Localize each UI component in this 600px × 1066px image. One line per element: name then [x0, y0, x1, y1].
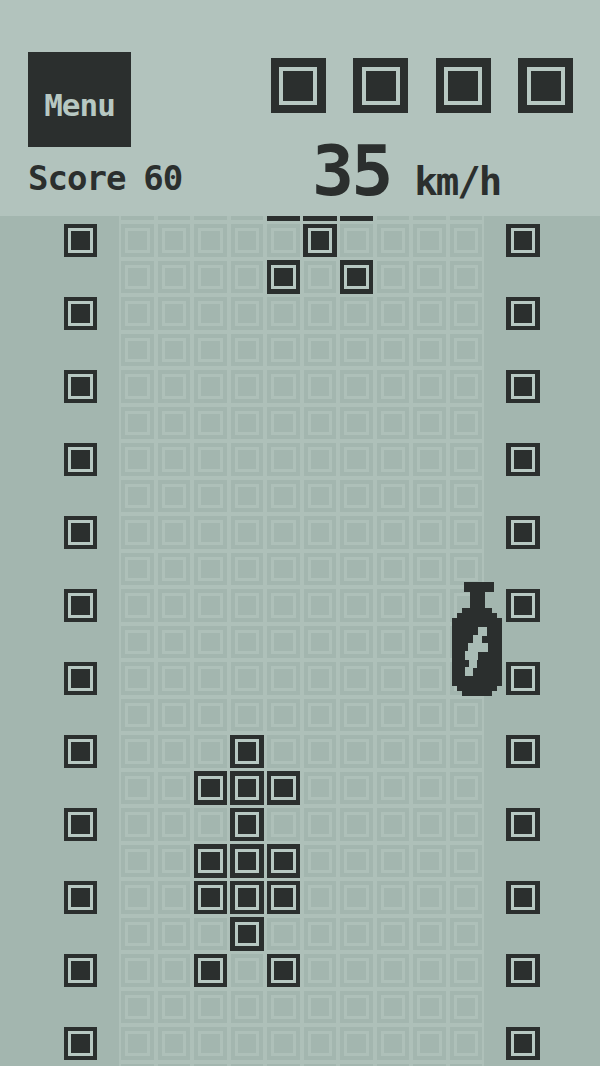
empty-cell [375, 770, 412, 807]
empty-cell [265, 332, 302, 369]
empty-cell [156, 697, 193, 734]
player-car-block [230, 881, 264, 915]
wall-block-left [64, 297, 98, 331]
empty-cell [156, 1062, 193, 1066]
empty-cell [411, 332, 448, 369]
empty-cell [265, 587, 302, 624]
score-value: 60 [143, 158, 182, 198]
empty-cell [265, 733, 302, 770]
empty-cell [229, 952, 266, 989]
empty-cell [229, 989, 266, 1026]
empty-cell [411, 770, 448, 807]
wall-block-left [64, 808, 98, 842]
empty-cell [411, 441, 448, 478]
empty-cell [265, 1062, 302, 1066]
empty-cell [119, 843, 156, 880]
empty-cell [302, 1025, 339, 1062]
menu-button[interactable]: Menu [28, 52, 131, 147]
empty-cell [375, 441, 412, 478]
empty-cell [192, 551, 229, 588]
empty-cell [119, 514, 156, 551]
empty-cell [192, 259, 229, 296]
empty-cell [156, 879, 193, 916]
empty-cell [265, 551, 302, 588]
empty-cell [156, 843, 193, 880]
empty-cell [338, 514, 375, 551]
empty-cell [338, 770, 375, 807]
empty-cell [192, 1062, 229, 1066]
enemy-car-block [303, 224, 337, 258]
empty-cell [411, 952, 448, 989]
empty-cell [302, 697, 339, 734]
empty-cell [229, 697, 266, 734]
empty-cell [302, 660, 339, 697]
wall-block-left [64, 1027, 98, 1061]
empty-cell [156, 514, 193, 551]
empty-cell [448, 879, 485, 916]
wall-block-left [64, 954, 98, 988]
empty-cell [265, 222, 302, 259]
empty-cell [448, 952, 485, 989]
empty-cell [338, 295, 375, 332]
empty-cell [265, 1025, 302, 1062]
wall-block-left [64, 735, 98, 769]
wall-block-left [64, 370, 98, 404]
empty-cell [375, 989, 412, 1026]
empty-cell [119, 806, 156, 843]
empty-cell [338, 879, 375, 916]
empty-cell [448, 843, 485, 880]
speed-value: 35 [312, 136, 390, 206]
empty-cell [411, 368, 448, 405]
empty-cell [448, 514, 485, 551]
empty-cell [229, 368, 266, 405]
empty-cell [265, 660, 302, 697]
player-car-block [267, 771, 301, 805]
empty-cell [302, 514, 339, 551]
empty-cell [119, 441, 156, 478]
empty-cell [119, 916, 156, 953]
enemy-car-block [303, 216, 337, 221]
empty-cell [119, 770, 156, 807]
player-car-block [230, 771, 264, 805]
empty-cell [338, 843, 375, 880]
player-car-block [194, 881, 228, 915]
player-car-block [194, 954, 228, 988]
empty-cell [338, 1025, 375, 1062]
empty-cell [302, 332, 339, 369]
player-car-block [267, 954, 301, 988]
empty-cell [448, 259, 485, 296]
wall-block-left [64, 589, 98, 623]
player-car-block [194, 844, 228, 878]
empty-cell [338, 332, 375, 369]
empty-cell [229, 295, 266, 332]
empty-cell [119, 295, 156, 332]
wall-block-left [64, 516, 98, 550]
lives [271, 58, 574, 113]
wall-block-right [506, 443, 540, 477]
empty-cell [375, 843, 412, 880]
empty-cell [156, 551, 193, 588]
empty-cell [156, 660, 193, 697]
menu-button-label: Menu [44, 87, 115, 123]
empty-cell [229, 478, 266, 515]
empty-cell [338, 222, 375, 259]
empty-cell [375, 332, 412, 369]
speed-unit: km/h [414, 162, 500, 201]
empty-cell [192, 916, 229, 953]
empty-cell [229, 259, 266, 296]
empty-cell [302, 441, 339, 478]
hud: Menu Score 60 35 km/h [0, 0, 600, 216]
empty-cell [448, 295, 485, 332]
wall-block-right [506, 735, 540, 769]
empty-cell [119, 368, 156, 405]
empty-cell [338, 405, 375, 442]
empty-cell [119, 332, 156, 369]
empty-cell [338, 368, 375, 405]
empty-cell [338, 916, 375, 953]
empty-cell [192, 733, 229, 770]
empty-cell [375, 733, 412, 770]
empty-cell [375, 1025, 412, 1062]
empty-cell [411, 1062, 448, 1066]
empty-cell [375, 368, 412, 405]
empty-cell [156, 770, 193, 807]
empty-cell [411, 733, 448, 770]
empty-cell [411, 916, 448, 953]
empty-cell [338, 660, 375, 697]
empty-cell [192, 1025, 229, 1062]
empty-cell [156, 295, 193, 332]
empty-cell [192, 405, 229, 442]
life-block [353, 58, 408, 113]
wall-block-left [64, 443, 98, 477]
empty-cell [338, 733, 375, 770]
empty-cell [119, 879, 156, 916]
game-screen: Menu Score 60 35 km/h [0, 0, 600, 1066]
empty-cell [375, 660, 412, 697]
empty-cell [229, 1062, 266, 1066]
wall-block-right [506, 1027, 540, 1061]
empty-cell [338, 551, 375, 588]
wall-block-right [506, 297, 540, 331]
empty-cell [375, 551, 412, 588]
empty-cell [302, 587, 339, 624]
empty-cell [119, 478, 156, 515]
empty-cell [265, 478, 302, 515]
speed-display: 35 km/h [312, 136, 500, 206]
empty-cell [156, 259, 193, 296]
empty-cell [375, 259, 412, 296]
player-car-block [267, 881, 301, 915]
life-block [271, 58, 326, 113]
empty-cell [119, 733, 156, 770]
empty-cell [302, 733, 339, 770]
empty-cell [375, 697, 412, 734]
empty-cell [229, 332, 266, 369]
empty-cell [119, 551, 156, 588]
empty-cell [302, 843, 339, 880]
empty-cell [375, 295, 412, 332]
empty-cell [302, 405, 339, 442]
empty-cell [265, 514, 302, 551]
empty-cell [229, 1025, 266, 1062]
empty-cell [411, 587, 448, 624]
empty-cell [229, 441, 266, 478]
empty-cell [448, 989, 485, 1026]
empty-cell [119, 1025, 156, 1062]
empty-cell [302, 368, 339, 405]
wall-block-right [506, 370, 540, 404]
empty-cell [375, 806, 412, 843]
empty-cell [411, 405, 448, 442]
empty-cell [119, 697, 156, 734]
empty-cell [156, 441, 193, 478]
empty-cell [192, 697, 229, 734]
empty-cell [448, 1062, 485, 1066]
empty-cell [448, 733, 485, 770]
empty-cell [192, 478, 229, 515]
empty-cell [448, 806, 485, 843]
empty-cell [302, 624, 339, 661]
empty-cell [229, 660, 266, 697]
empty-cell [302, 1062, 339, 1066]
empty-cell [156, 806, 193, 843]
empty-cell [265, 624, 302, 661]
empty-cell [119, 222, 156, 259]
fuel-nitro-bottle-icon [452, 582, 502, 697]
empty-cell [448, 405, 485, 442]
empty-cell [411, 1025, 448, 1062]
empty-cell [302, 916, 339, 953]
empty-cell [448, 222, 485, 259]
empty-cell [156, 624, 193, 661]
empty-cell [119, 952, 156, 989]
wall-block-left [64, 662, 98, 696]
wall-block-right [506, 224, 540, 258]
empty-cell [156, 733, 193, 770]
empty-cell [302, 295, 339, 332]
wall-block-right [506, 808, 540, 842]
enemy-car-block [340, 216, 374, 221]
enemy-car-block [267, 260, 301, 294]
empty-cell [119, 624, 156, 661]
empty-cell [448, 368, 485, 405]
empty-cell [375, 514, 412, 551]
empty-cell [265, 916, 302, 953]
empty-cell [265, 806, 302, 843]
play-field[interactable] [0, 216, 600, 1066]
empty-cell [192, 624, 229, 661]
player-car-block [230, 735, 264, 769]
wall-block-left [64, 224, 98, 258]
empty-cell [338, 989, 375, 1026]
empty-cell [156, 405, 193, 442]
empty-cell [411, 222, 448, 259]
empty-cell [156, 1025, 193, 1062]
wall-block-right [506, 881, 540, 915]
empty-cell [192, 332, 229, 369]
life-block [518, 58, 573, 113]
empty-cell [375, 587, 412, 624]
empty-cell [338, 624, 375, 661]
empty-cell [265, 405, 302, 442]
wall-block-right [506, 954, 540, 988]
empty-cell [156, 587, 193, 624]
empty-cell [411, 295, 448, 332]
empty-cell [119, 660, 156, 697]
player-car-block [230, 917, 264, 951]
empty-cell [265, 368, 302, 405]
empty-cell [375, 624, 412, 661]
life-block [436, 58, 491, 113]
empty-cell [302, 551, 339, 588]
empty-cell [192, 295, 229, 332]
empty-cell [302, 259, 339, 296]
empty-cell [411, 259, 448, 296]
empty-cell [302, 770, 339, 807]
empty-cell [411, 551, 448, 588]
empty-cell [375, 405, 412, 442]
empty-cell [411, 806, 448, 843]
empty-cell [411, 478, 448, 515]
empty-cell [338, 478, 375, 515]
empty-cell [302, 989, 339, 1026]
empty-cell [375, 952, 412, 989]
empty-cell [156, 368, 193, 405]
empty-cell [192, 514, 229, 551]
empty-cell [119, 1062, 156, 1066]
empty-cell [411, 514, 448, 551]
empty-cell [119, 259, 156, 296]
empty-cell [448, 332, 485, 369]
empty-cell [156, 332, 193, 369]
empty-cell [411, 989, 448, 1026]
wall-block-right [506, 589, 540, 623]
empty-cell [265, 295, 302, 332]
empty-cell [229, 514, 266, 551]
empty-cell [375, 879, 412, 916]
empty-cell [448, 916, 485, 953]
score-label: Score [28, 158, 125, 198]
empty-cell [338, 806, 375, 843]
player-car-block [230, 844, 264, 878]
empty-cell [192, 587, 229, 624]
empty-cell [375, 1062, 412, 1066]
empty-cell [192, 660, 229, 697]
empty-cell [302, 478, 339, 515]
empty-cell [302, 879, 339, 916]
wall-block-left [64, 881, 98, 915]
empty-cell [448, 478, 485, 515]
empty-cell [411, 879, 448, 916]
empty-cell [302, 806, 339, 843]
empty-cell [338, 587, 375, 624]
empty-cell [265, 697, 302, 734]
empty-cell [192, 806, 229, 843]
empty-cell [119, 587, 156, 624]
score-display: Score 60 [28, 158, 182, 198]
player-car-block [230, 808, 264, 842]
empty-cell [192, 989, 229, 1026]
empty-cell [265, 989, 302, 1026]
empty-cell [375, 478, 412, 515]
empty-cell [448, 697, 485, 734]
empty-cell [156, 478, 193, 515]
wall-block-right [506, 662, 540, 696]
empty-cell [448, 441, 485, 478]
empty-cell [338, 1062, 375, 1066]
empty-cell [411, 660, 448, 697]
empty-cell [192, 222, 229, 259]
player-car-block [267, 844, 301, 878]
empty-cell [411, 624, 448, 661]
empty-cell [156, 916, 193, 953]
enemy-car-block [340, 260, 374, 294]
empty-cell [229, 222, 266, 259]
empty-cell [192, 441, 229, 478]
enemy-car-block [267, 216, 301, 221]
empty-cell [375, 916, 412, 953]
empty-cell [229, 587, 266, 624]
wall-block-right [506, 516, 540, 550]
empty-cell [448, 1025, 485, 1062]
empty-cell [448, 770, 485, 807]
empty-cell [265, 441, 302, 478]
empty-cell [192, 368, 229, 405]
player-car-block [194, 771, 228, 805]
empty-cell [119, 405, 156, 442]
empty-cell [338, 441, 375, 478]
empty-cell [302, 952, 339, 989]
empty-cell [411, 697, 448, 734]
empty-cell [229, 624, 266, 661]
empty-cell [229, 405, 266, 442]
empty-cell [156, 989, 193, 1026]
empty-cell [338, 952, 375, 989]
empty-cell [229, 551, 266, 588]
empty-cell [119, 989, 156, 1026]
empty-cell [338, 697, 375, 734]
empty-cell [156, 222, 193, 259]
empty-cell [156, 952, 193, 989]
empty-cell [411, 843, 448, 880]
empty-cell [375, 222, 412, 259]
